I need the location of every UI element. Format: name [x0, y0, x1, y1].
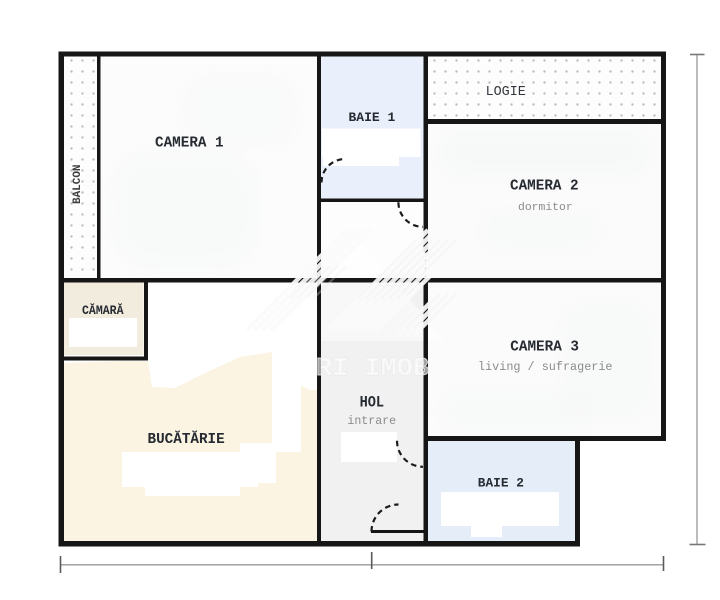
svg-text:LOGIE: LOGIE: [486, 85, 526, 100]
svg-text:CAMERA 2: CAMERA 2: [510, 179, 579, 195]
svg-text:RI IMOB: RI IMOB: [316, 353, 429, 383]
svg-text:BUCĂTĂRIE: BUCĂTĂRIE: [148, 430, 225, 448]
svg-text:CAMERA 3: CAMERA 3: [510, 340, 579, 356]
svg-text:BALCON: BALCON: [72, 165, 84, 205]
svg-text:CĂMARĂ: CĂMARĂ: [82, 303, 124, 318]
svg-text:CAMERA 1: CAMERA 1: [155, 136, 224, 152]
svg-text:dormitor: dormitor: [518, 202, 573, 214]
svg-text:HOL: HOL: [360, 394, 385, 412]
svg-text:intrare: intrare: [347, 415, 396, 428]
svg-text:living / sufragerie: living / sufragerie: [478, 360, 613, 374]
svg-text:BAIE 1: BAIE 1: [349, 110, 396, 125]
svg-text:BAIE 2: BAIE 2: [478, 476, 524, 491]
